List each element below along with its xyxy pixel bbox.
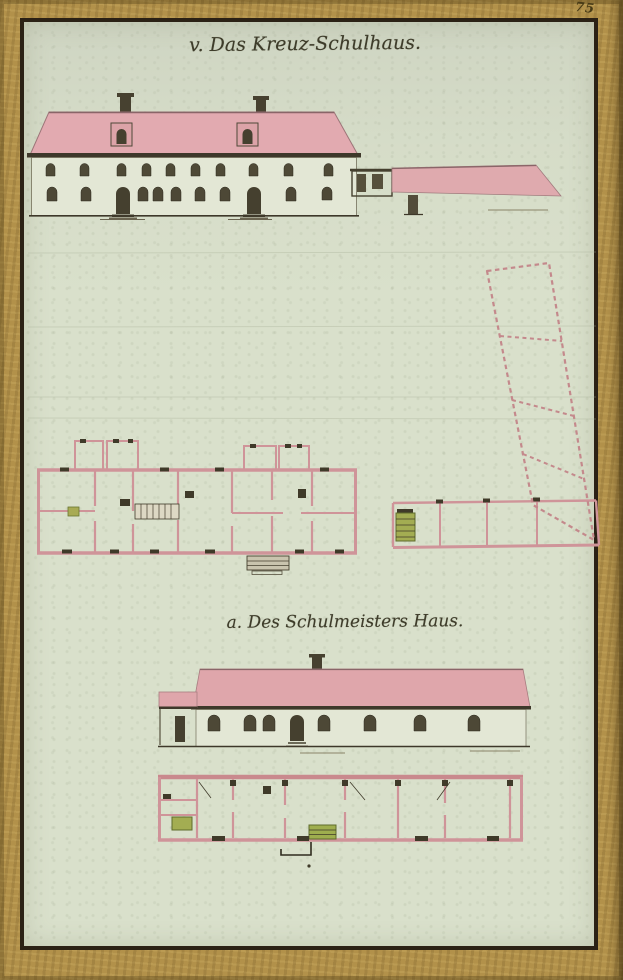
paper-streaks: [28, 252, 596, 419]
chimney-icon: [309, 654, 325, 670]
entrance-steps: [247, 556, 289, 575]
manuscript-page: 75 v. Das Kreuz-Schulhaus. a. Des Schulm…: [0, 0, 623, 980]
garden-plot-dashed-outline: [487, 263, 594, 540]
stove-icon: [68, 507, 79, 516]
dormer-right: [237, 123, 258, 146]
annex-stove-icon: [172, 817, 192, 830]
architectural-drawing: [0, 0, 623, 980]
entrance-path: [281, 842, 311, 855]
dormer-left: [111, 123, 132, 146]
ink-accents: [60, 468, 344, 554]
chimney-icon: [117, 93, 269, 113]
partition-walls: [39, 471, 356, 552]
schoolhouse-elevation: [27, 93, 361, 220]
wall-door: [408, 195, 418, 214]
wing-stove-icon: [396, 509, 415, 541]
roof: [30, 112, 358, 155]
projecting-rooms: [75, 441, 309, 470]
roof: [193, 669, 530, 707]
door-swings: [199, 782, 450, 800]
schoolmaster-house-elevation: [158, 654, 531, 753]
stove-icon: [309, 825, 336, 839]
courtyard-wing-plan: [393, 498, 599, 548]
schoolmaster-house-plan: [158, 777, 523, 868]
wall-roof: [392, 165, 561, 196]
schoolhouse-ground-plan: [37, 439, 357, 575]
annex: [159, 692, 197, 745]
courtyard-wall-elevation: [350, 165, 561, 215]
staircase: [135, 504, 179, 519]
ink-accents: [163, 780, 513, 841]
survey-dot: [307, 864, 310, 867]
